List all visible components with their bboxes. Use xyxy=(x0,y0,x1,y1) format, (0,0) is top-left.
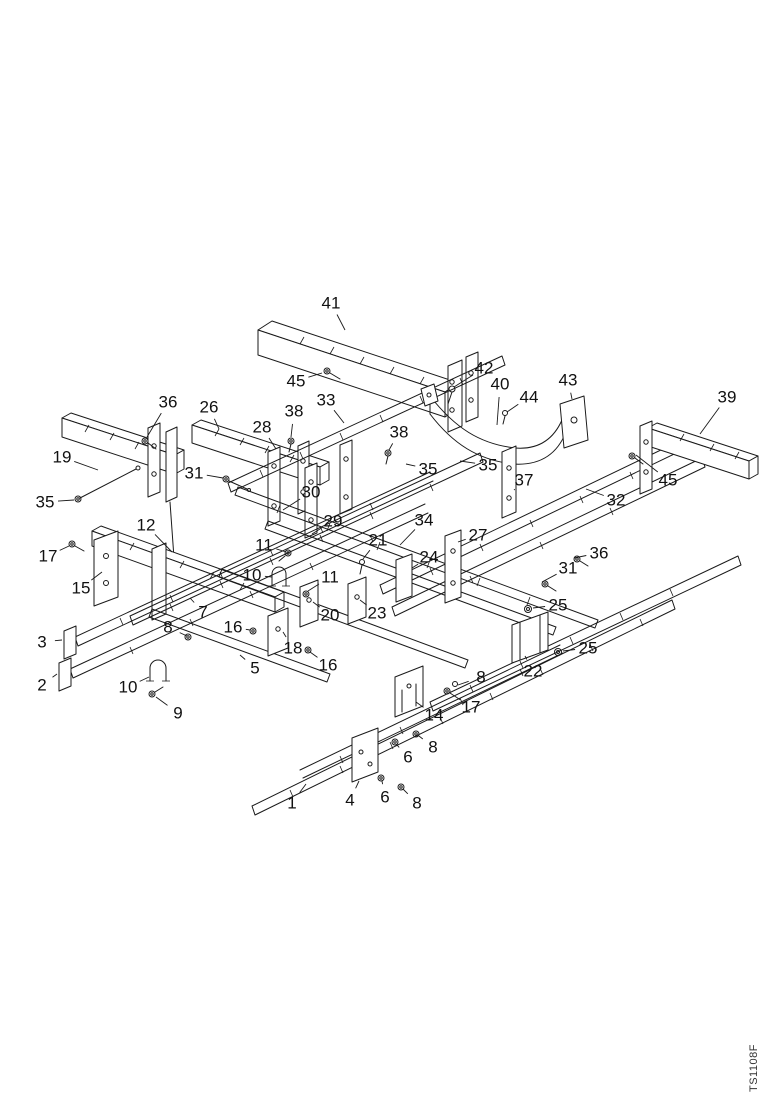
watermark-code: TS1108F xyxy=(748,1044,760,1092)
callout-label-1: 1 xyxy=(287,794,296,813)
callout-36: 36 xyxy=(574,544,608,563)
callout-35: 35 xyxy=(406,460,437,479)
callout-label-3: 3 xyxy=(37,633,46,652)
callout-1: 1 xyxy=(287,784,306,813)
leader-line-33 xyxy=(334,410,344,423)
callout-label-15: 15 xyxy=(72,579,91,598)
beam-39-part xyxy=(629,421,758,494)
diagram-page: 4145362638283342404443394535353837323631… xyxy=(0,0,778,1100)
callout-label-38: 38 xyxy=(390,423,409,442)
callout-label-20: 20 xyxy=(321,606,340,625)
leader-line-9 xyxy=(156,697,168,705)
leader-line-16 xyxy=(310,652,318,657)
callout-label-10: 10 xyxy=(243,566,262,585)
callout-35: 35 xyxy=(460,456,497,475)
leader-line-38 xyxy=(291,424,293,437)
callout-label-38: 38 xyxy=(285,402,304,421)
callout-label-16: 16 xyxy=(224,618,243,637)
bracket-14 xyxy=(395,666,423,717)
leader-line-8 xyxy=(403,789,408,794)
callout-9: 9 xyxy=(156,697,183,723)
callout-label-6: 6 xyxy=(403,748,412,767)
leader-line-10 xyxy=(265,576,272,577)
callout-27: 27 xyxy=(458,526,487,545)
callout-label-7: 7 xyxy=(198,603,207,622)
leader-line-35 xyxy=(58,500,74,501)
callout-label-11: 11 xyxy=(321,568,339,587)
callout-label-4: 4 xyxy=(345,791,354,810)
callout-label-30: 30 xyxy=(302,483,321,502)
bracket-4 xyxy=(352,728,378,782)
callout-35: 35 xyxy=(36,493,74,512)
callout-label-24: 24 xyxy=(420,548,439,567)
callout-label-39: 39 xyxy=(718,388,737,407)
bracket-22 xyxy=(512,612,548,663)
callout-label-25: 25 xyxy=(579,639,598,658)
callout-2: 2 xyxy=(37,674,57,695)
callout-43: 43 xyxy=(559,371,578,400)
leader-line-31 xyxy=(207,475,223,478)
callout-label-45: 45 xyxy=(287,372,306,391)
callout-label-31: 31 xyxy=(559,559,578,578)
callout-14: 14 xyxy=(416,702,443,725)
callout-34: 34 xyxy=(400,511,433,546)
leader-line-6 xyxy=(382,781,383,784)
callout-label-41: 41 xyxy=(322,294,341,313)
callout-8: 8 xyxy=(419,736,438,757)
leader-line-8 xyxy=(419,736,423,739)
callout-label-2: 2 xyxy=(37,676,46,695)
callout-label-5: 5 xyxy=(250,659,259,678)
callout-label-21: 21 xyxy=(369,531,388,550)
callout-label-9: 9 xyxy=(173,704,182,723)
callout-31: 31 xyxy=(185,464,223,483)
callout-38: 38 xyxy=(285,402,304,438)
leader-line-4 xyxy=(356,781,359,788)
leader-line-35 xyxy=(406,464,415,466)
callout-25: 25 xyxy=(563,639,597,658)
leader-line-7 xyxy=(190,598,194,603)
leader-line-3 xyxy=(55,640,62,641)
callout-label-35: 35 xyxy=(479,456,498,475)
callout-label-17: 17 xyxy=(462,698,481,717)
callout-24: 24 xyxy=(412,548,438,569)
callout-41: 41 xyxy=(322,294,345,331)
callout-label-6: 6 xyxy=(380,788,389,807)
callout-label-44: 44 xyxy=(520,388,539,407)
callout-label-35: 35 xyxy=(419,460,438,479)
leader-line-17 xyxy=(60,546,69,550)
callout-22: 22 xyxy=(524,656,543,681)
callout-44: 44 xyxy=(507,388,538,413)
callout-label-8: 8 xyxy=(412,794,421,813)
callout-38: 38 xyxy=(389,423,408,451)
callout-6: 6 xyxy=(397,745,413,767)
callout-6: 6 xyxy=(380,781,389,807)
callout-32: 32 xyxy=(586,489,625,510)
callout-10: 10 xyxy=(243,566,272,585)
callout-label-45: 45 xyxy=(659,471,678,490)
callout-label-25: 25 xyxy=(549,596,568,615)
callout-16: 16 xyxy=(224,618,250,637)
callout-7: 7 xyxy=(190,598,208,622)
leader-line-38 xyxy=(389,443,393,450)
callout-label-19: 19 xyxy=(53,448,72,467)
leader-line-2 xyxy=(53,674,58,677)
callout-label-37: 37 xyxy=(515,471,534,490)
callout-label-27: 27 xyxy=(469,526,488,545)
callout-label-11: 11 xyxy=(255,536,273,555)
callout-45: 45 xyxy=(287,372,322,391)
leader-line-43 xyxy=(571,393,572,399)
callout-label-16: 16 xyxy=(319,656,338,675)
callout-label-8: 8 xyxy=(428,738,437,757)
callout-37: 37 xyxy=(514,471,533,491)
callout-label-35: 35 xyxy=(36,493,55,512)
leader-line-16 xyxy=(246,629,250,630)
callout-label-34: 34 xyxy=(415,511,434,530)
callout-label-36: 36 xyxy=(159,393,178,412)
callout-label-31: 31 xyxy=(185,464,204,483)
callout-33: 33 xyxy=(317,391,344,424)
callout-3: 3 xyxy=(37,633,62,652)
callout-label-22: 22 xyxy=(524,662,543,681)
callout-label-40: 40 xyxy=(491,375,510,394)
callout-label-14: 14 xyxy=(425,706,444,725)
callout-label-33: 33 xyxy=(317,391,336,410)
callout-label-12: 12 xyxy=(137,516,156,535)
callout-label-43: 43 xyxy=(559,371,578,390)
callout-label-10: 10 xyxy=(119,678,138,697)
wing-rail xyxy=(430,556,741,711)
callout-40: 40 xyxy=(491,375,510,426)
callout-8: 8 xyxy=(403,789,422,813)
leader-line-44 xyxy=(507,404,518,412)
callout-label-8: 8 xyxy=(163,618,172,637)
callout-label-23: 23 xyxy=(368,604,387,623)
leader-line-40 xyxy=(497,397,499,425)
leader-line-41 xyxy=(337,315,345,331)
callout-16: 16 xyxy=(310,652,337,675)
leader-line-35 xyxy=(460,461,475,463)
callout-label-17: 17 xyxy=(39,547,58,566)
callout-label-36: 36 xyxy=(590,544,609,563)
callout-5: 5 xyxy=(240,655,260,678)
leader-line-39 xyxy=(700,408,719,435)
callout-label-18: 18 xyxy=(284,639,303,658)
callout-4: 4 xyxy=(345,781,359,810)
leader-line-32 xyxy=(586,489,604,496)
leader-line-19 xyxy=(74,461,98,470)
callout-10: 10 xyxy=(119,677,149,697)
callout-label-26: 26 xyxy=(200,398,219,417)
leader-line-5 xyxy=(240,655,245,660)
callout-label-32: 32 xyxy=(607,491,626,510)
callout-label-29: 29 xyxy=(324,512,343,531)
parts-diagram: 4145362638283342404443394535353837323631… xyxy=(0,0,778,1100)
callout-19: 19 xyxy=(53,448,98,471)
rod-35-part xyxy=(75,466,140,502)
callout-8: 8 xyxy=(458,668,486,687)
callout-label-8: 8 xyxy=(476,668,485,687)
callout-31: 31 xyxy=(542,559,577,583)
callout-label-28: 28 xyxy=(253,418,272,437)
leader-line-34 xyxy=(400,529,415,545)
leader-line-31 xyxy=(542,574,557,582)
callout-39: 39 xyxy=(700,388,736,435)
callout-17: 17 xyxy=(39,546,69,566)
